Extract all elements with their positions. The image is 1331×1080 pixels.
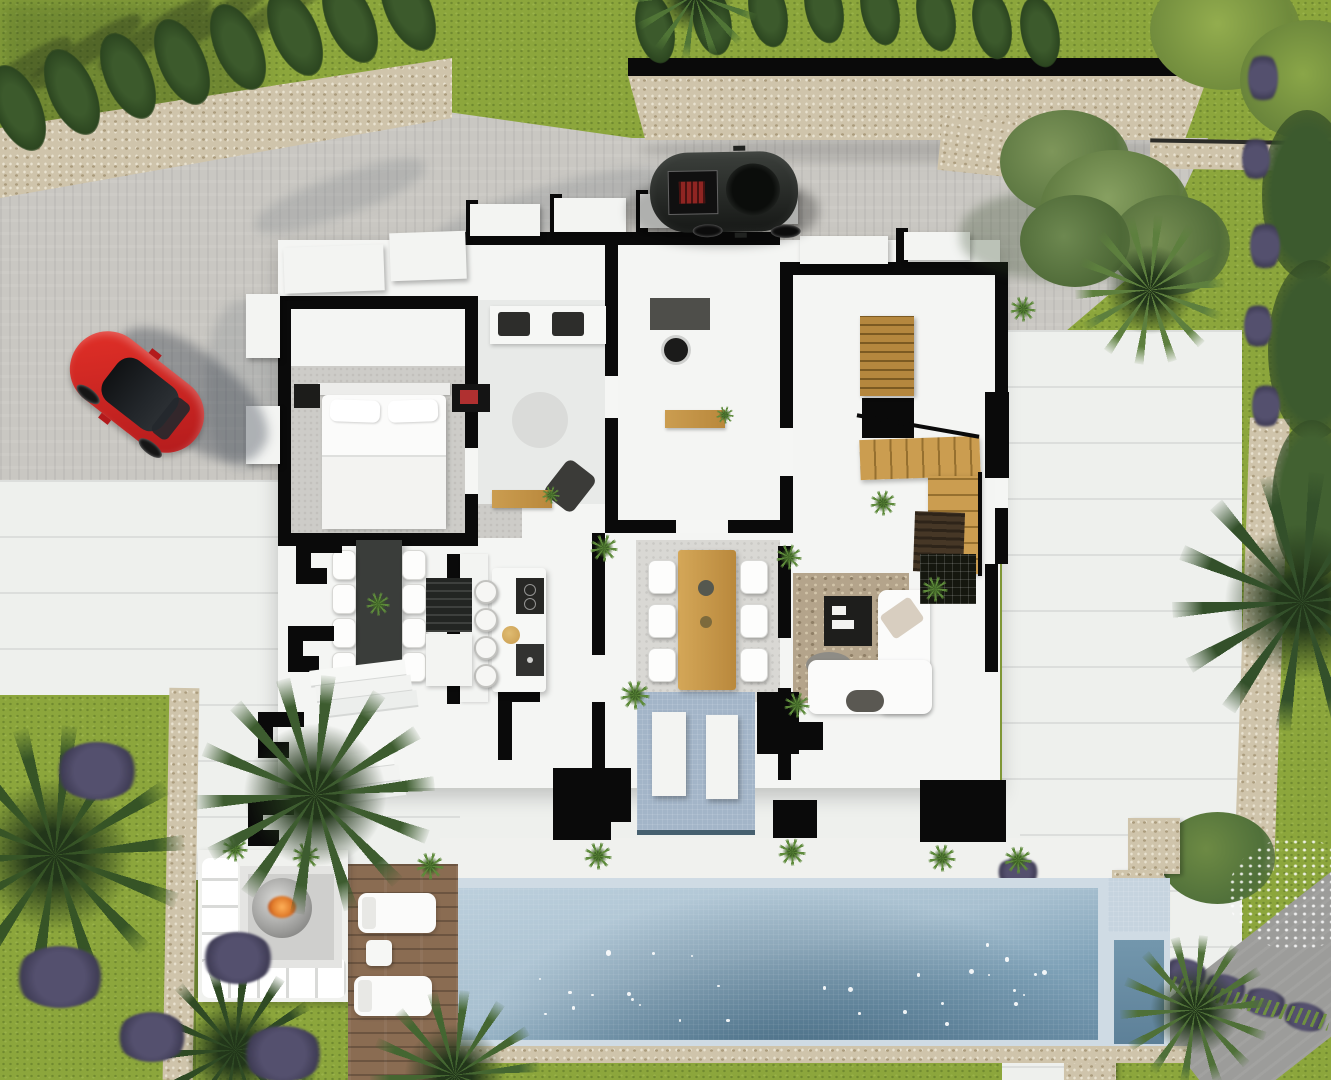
pool-sparkle [572, 1006, 576, 1010]
pool-sparkle [544, 1013, 546, 1015]
purple-shrub [242, 1026, 324, 1080]
pool-sparkle [1042, 970, 1047, 975]
window-slab [283, 244, 385, 293]
purple-shrub [14, 946, 106, 1008]
log [832, 606, 846, 615]
log [832, 620, 854, 629]
pool-sparkle [941, 1002, 944, 1005]
pool-sparkle [969, 969, 974, 974]
fan-palm [1075, 215, 1225, 365]
pool-corner-tile [1108, 878, 1170, 932]
lounger-pillow [358, 980, 372, 1012]
outdoor-chair [402, 584, 426, 614]
fireplace [824, 596, 872, 646]
pool-sparkle [1013, 989, 1016, 992]
engine-red [679, 181, 705, 203]
pool-sparkle [652, 952, 655, 955]
wall-segment [780, 262, 793, 533]
engine-window [668, 170, 719, 215]
dining-chair [740, 560, 768, 594]
pool-side-palm [1120, 935, 1270, 1080]
planter-tuft [778, 838, 806, 866]
burner [524, 598, 536, 610]
pool-sparkle [591, 994, 594, 997]
scene-root [0, 0, 1331, 1080]
bed-duvet [322, 455, 446, 529]
wall-segment [985, 564, 998, 672]
pool-sparkle [1023, 994, 1025, 996]
pool-water [458, 888, 1098, 1040]
pool-sparkle [1034, 973, 1038, 977]
tv-screen [460, 390, 478, 404]
window-slab [800, 236, 888, 264]
console-plant [716, 406, 734, 424]
car-mirror [735, 233, 747, 238]
pool-sparkle [848, 987, 853, 992]
island-sink [516, 644, 544, 676]
office-chair [664, 338, 688, 362]
fruit-bowl [502, 626, 520, 644]
bbq-counter [426, 578, 472, 632]
window-slab [389, 231, 467, 282]
door-gap [605, 376, 618, 418]
nightstand [294, 384, 320, 408]
door-gap [676, 520, 728, 533]
stair-plant [870, 490, 896, 516]
wall-segment [498, 688, 512, 760]
column-mark-foot [311, 568, 327, 584]
dining-chair [648, 560, 676, 594]
pillow [388, 399, 439, 423]
pool-edge-stones [442, 1046, 1188, 1063]
pool-sparkle [1014, 1002, 1018, 1006]
pool-sparkle [726, 1019, 729, 1022]
indoor-plant [784, 692, 810, 718]
column-mark-arm [288, 626, 303, 672]
bar-stool [474, 580, 498, 604]
pool-sparkle [917, 973, 921, 977]
outdoor-chair [402, 618, 426, 648]
car-wheel [693, 224, 723, 238]
palm-tree [195, 675, 435, 915]
flower-cluster [1250, 220, 1280, 272]
bar-stool [474, 608, 498, 632]
planter-tuft [584, 842, 612, 870]
window-slab [554, 198, 626, 232]
column-mark-arm [296, 538, 311, 584]
wall-segment [605, 768, 631, 822]
indoor-plant [590, 534, 618, 562]
wall-segment [278, 296, 468, 309]
pool-sparkle [717, 985, 719, 987]
pool-sparkle [539, 978, 541, 980]
stepped-stone-wall [1128, 818, 1180, 874]
bar-stool [474, 664, 498, 688]
table-plant [366, 592, 390, 616]
tap [527, 657, 533, 663]
pool-sparkle [606, 950, 611, 955]
window-slab [246, 294, 280, 358]
wall-segment [553, 768, 611, 840]
stair-railing [978, 472, 982, 576]
tv-stand [452, 384, 490, 412]
purple-shrub [202, 932, 274, 984]
bbq-cabinet [426, 634, 472, 686]
indoor-plant [776, 544, 802, 570]
purple-shrub [55, 742, 139, 800]
pool-sparkle [986, 943, 990, 947]
flower-cluster [1248, 52, 1278, 104]
flower-cluster [1244, 302, 1272, 350]
pool-sparkle [823, 986, 826, 989]
wall-segment [920, 780, 1006, 842]
burner [524, 584, 536, 596]
planter-tuft [1004, 846, 1032, 874]
table-centerpiece [700, 616, 712, 628]
pool-sparkle [639, 1004, 641, 1006]
black-sports-car [641, 143, 805, 242]
pool-sparkle [568, 991, 571, 994]
window-slab [470, 204, 540, 236]
car-wheel [771, 225, 801, 239]
outdoor-chair [332, 618, 356, 648]
pool-sparkle [627, 992, 631, 996]
wall-segment [757, 722, 823, 750]
dining-chair [648, 648, 676, 682]
wall-segment [985, 392, 1009, 478]
pillow [330, 399, 381, 423]
dining-chair [740, 648, 768, 682]
outdoor-chair [332, 584, 356, 614]
sink-basin [552, 312, 584, 336]
pool-sparkle [1005, 957, 1010, 962]
stair-mid-flight [859, 436, 980, 480]
pool-sparkle [903, 1010, 907, 1014]
car-mirror [733, 146, 745, 151]
stair-upper-slats [860, 316, 914, 396]
bar-stool [474, 636, 498, 660]
planter-tuft [1010, 296, 1036, 322]
column-mark [288, 626, 334, 672]
wall-segment [773, 800, 817, 838]
ottoman [846, 690, 884, 712]
pool-sparkle [988, 974, 990, 976]
door-gap [465, 448, 478, 494]
cooktop [516, 578, 544, 614]
pool-sparkle [691, 955, 693, 957]
dining-chair [648, 604, 676, 638]
table-centerpiece [698, 580, 714, 596]
pool-sparkle [679, 1019, 682, 1022]
round-rug [512, 392, 568, 448]
pool-sparkle [858, 1012, 861, 1015]
bed-headboard [318, 383, 450, 395]
courtyard-slab [706, 715, 738, 799]
door-gap [780, 428, 793, 476]
wall-cap [628, 58, 1208, 76]
wall-face [628, 76, 1208, 140]
flower-cluster [1252, 382, 1280, 430]
column-mark [296, 538, 342, 584]
office-desk [650, 298, 710, 330]
flower-cluster [1242, 136, 1270, 182]
indoor-plant [922, 576, 948, 602]
purple-shrub [116, 1012, 188, 1062]
pool-sparkle [631, 998, 634, 1001]
courtyard-slab [652, 712, 686, 796]
pool-sparkle [945, 1022, 949, 1026]
dining-chair [740, 604, 768, 638]
outdoor-chair [402, 550, 426, 580]
wall-segment [465, 296, 478, 533]
planter-tuft [928, 844, 956, 872]
indoor-plant [620, 680, 650, 710]
deck-side-table [366, 940, 392, 966]
console-plant [542, 486, 560, 504]
retaining-wall-topcenter [628, 58, 1208, 140]
planter-tuft [416, 852, 444, 880]
sink-basin [498, 312, 530, 336]
